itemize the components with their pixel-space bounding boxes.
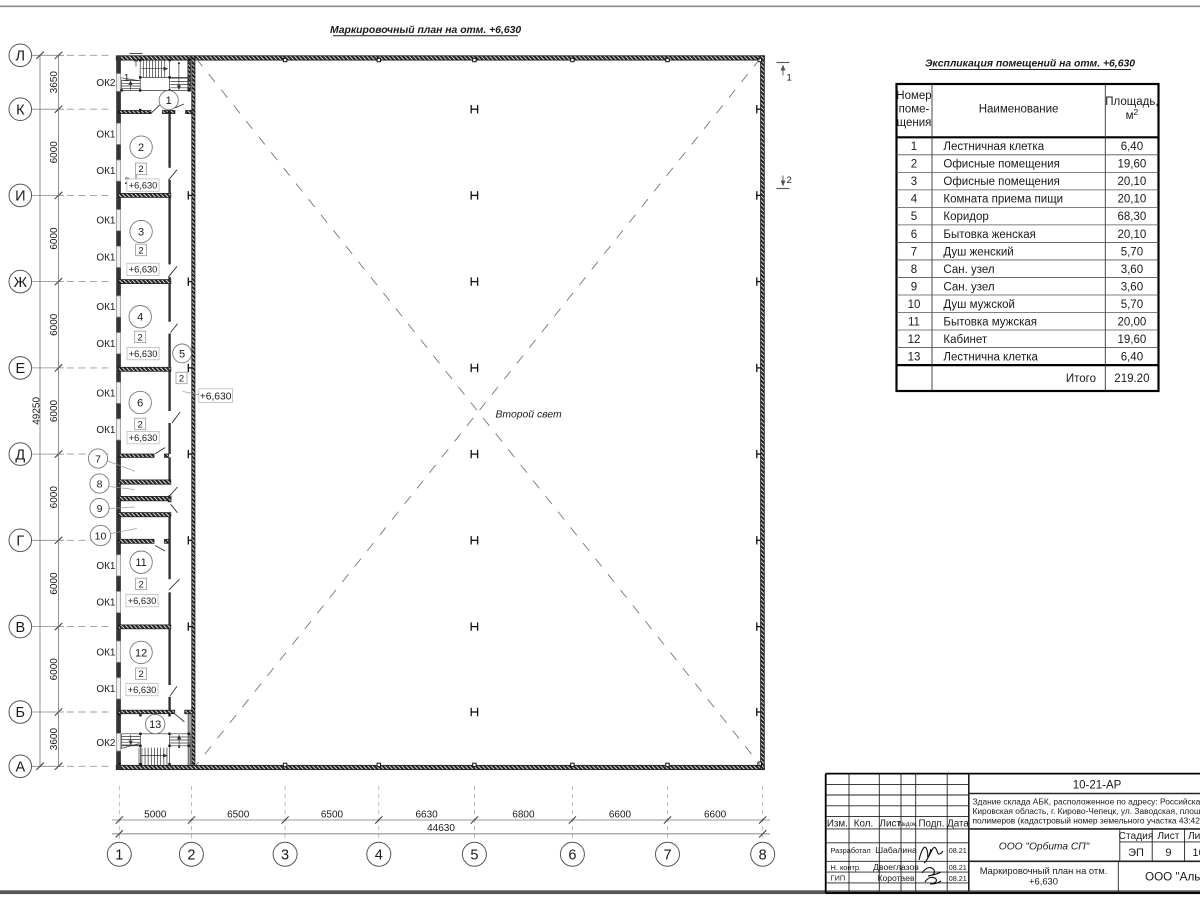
svg-text:6: 6 [911, 229, 917, 241]
svg-text:3650: 3650 [49, 71, 60, 94]
svg-text:20,10: 20,10 [1118, 176, 1147, 188]
svg-text:3: 3 [138, 227, 144, 239]
svg-text:5000: 5000 [144, 809, 167, 820]
svg-text:Душ мужской: Душ мужской [943, 299, 1015, 311]
svg-text:Комната приема пищи: Комната приема пищи [943, 194, 1063, 206]
svg-text:ООО "Орбита СП": ООО "Орбита СП" [999, 841, 1090, 853]
svg-text:Лестнична клетка: Лестнична клетка [943, 351, 1038, 363]
svg-text:+6,630: +6,630 [129, 180, 158, 190]
svg-text:2: 2 [187, 847, 195, 863]
svg-text:2: 2 [138, 245, 143, 256]
svg-text:А: А [15, 760, 25, 776]
svg-text:Второй свет: Второй свет [496, 409, 563, 420]
svg-text:13: 13 [149, 719, 161, 731]
svg-text:+6,630: +6,630 [129, 265, 158, 275]
svg-text:7: 7 [95, 453, 101, 465]
svg-text:ОК1: ОК1 [96, 647, 116, 658]
svg-text:6000: 6000 [49, 141, 60, 164]
svg-text:1: 1 [166, 95, 172, 107]
svg-text:12: 12 [135, 647, 147, 659]
svg-text:8: 8 [759, 847, 767, 863]
svg-text:1: 1 [115, 847, 123, 863]
svg-text:+6,630: +6,630 [128, 596, 157, 606]
svg-text:поме-: поме- [899, 104, 930, 116]
svg-text:Кабинет: Кабинет [943, 334, 987, 346]
svg-text:2: 2 [911, 159, 917, 171]
svg-text:5: 5 [179, 348, 185, 360]
svg-text:И: И [15, 189, 25, 205]
svg-text:Итого: Итого [1066, 373, 1096, 385]
svg-text:ОК2: ОК2 [96, 738, 116, 749]
svg-text:ОК1: ОК1 [96, 129, 116, 140]
svg-text:ОК1: ОК1 [96, 302, 116, 313]
svg-text:4: 4 [137, 312, 143, 324]
svg-text:ОК1: ОК1 [96, 684, 116, 695]
svg-text:Двоеглазов: Двоеглазов [873, 862, 919, 872]
svg-text:Офисные помещения: Офисные помещения [943, 159, 1059, 171]
svg-text:19,60: 19,60 [1118, 334, 1147, 346]
svg-text:Шабалина: Шабалина [875, 845, 917, 855]
svg-text:полимеров (кадастровый номер з: полимеров (кадастровый номер земельного … [973, 815, 1200, 825]
svg-text:Наименование: Наименование [979, 104, 1059, 116]
svg-text:9: 9 [1165, 847, 1171, 859]
svg-text:Экспликация помещений на отм.: Экспликация помещений на отм. +6,630 [925, 59, 1135, 70]
svg-text:20,00: 20,00 [1118, 316, 1147, 328]
svg-text:6: 6 [568, 847, 576, 863]
svg-text:ООО "Альянс: ООО "Альянс [1145, 871, 1200, 884]
svg-text:6000: 6000 [49, 658, 60, 681]
svg-text:08.21: 08.21 [949, 874, 967, 883]
svg-text:20,10: 20,10 [1118, 194, 1147, 206]
svg-text:4: 4 [911, 194, 918, 206]
svg-text:7: 7 [911, 246, 917, 258]
svg-text:2: 2 [138, 579, 143, 590]
svg-text:6000: 6000 [49, 486, 60, 509]
svg-text:Лист: Лист [1157, 831, 1179, 842]
svg-text:+6,630: +6,630 [129, 433, 158, 443]
svg-text:5: 5 [470, 847, 478, 863]
svg-text:2: 2 [138, 669, 143, 680]
svg-text:В: В [15, 620, 25, 636]
svg-text:6000: 6000 [49, 227, 60, 250]
svg-text:10: 10 [908, 299, 921, 311]
svg-text:10: 10 [95, 530, 107, 542]
svg-text:Ж: Ж [14, 275, 28, 291]
svg-text:1: 1 [787, 73, 792, 84]
svg-text:8: 8 [911, 264, 917, 276]
svg-text:Сан. узел: Сан. узел [943, 281, 994, 293]
svg-text:Площадь,: Площадь, [1105, 96, 1158, 108]
svg-text:13: 13 [908, 351, 921, 363]
svg-text:Г: Г [16, 534, 24, 550]
svg-text:Маркировочный план на отм. +6,: Маркировочный план на отм. +6,630 [330, 25, 521, 36]
svg-text:ОК1: ОК1 [96, 425, 116, 436]
svg-text:+6,630: +6,630 [200, 391, 232, 402]
svg-text:49250: 49250 [31, 397, 42, 425]
svg-text:2: 2 [787, 175, 792, 186]
svg-text:Кол.: Кол. [854, 819, 873, 830]
svg-text:Бытовка мужская: Бытовка мужская [943, 316, 1037, 328]
svg-text:44630: 44630 [427, 823, 455, 834]
svg-text:9: 9 [911, 281, 917, 293]
svg-text:6500: 6500 [321, 809, 344, 820]
svg-text:1: 1 [124, 73, 129, 84]
svg-text:Б: Б [16, 705, 26, 721]
svg-text:3: 3 [281, 847, 289, 863]
svg-text:3: 3 [911, 176, 917, 188]
svg-text:Сан. узел: Сан. узел [943, 264, 994, 276]
svg-text:2: 2 [138, 164, 143, 175]
svg-text:Стадия: Стадия [1119, 831, 1154, 842]
svg-text:ОК1: ОК1 [96, 598, 116, 609]
svg-text:1: 1 [911, 141, 917, 153]
svg-text:11: 11 [908, 316, 920, 328]
svg-text:Е: Е [15, 361, 25, 377]
svg-text:Л: Л [16, 49, 26, 65]
svg-text:ОК2: ОК2 [96, 78, 116, 89]
svg-text:19,60: 19,60 [1118, 159, 1147, 171]
svg-text:Подп.: Подп. [918, 819, 944, 830]
svg-text:5,70: 5,70 [1121, 246, 1143, 258]
svg-text:20,10: 20,10 [1118, 229, 1147, 241]
svg-text:8: 8 [97, 478, 103, 490]
svg-text:5: 5 [911, 211, 917, 223]
svg-text:Изм.: Изм. [827, 819, 848, 830]
svg-text:Маркировочный план на отм.: Маркировочный план на отм. [980, 865, 1108, 876]
svg-text:ОК1: ОК1 [96, 339, 116, 350]
svg-text:16: 16 [1192, 847, 1200, 859]
svg-text:Дата: Дата [947, 819, 969, 830]
svg-text:К: К [16, 102, 25, 118]
svg-text:6000: 6000 [49, 313, 60, 336]
svg-text:3,60: 3,60 [1121, 264, 1143, 276]
svg-text:6000: 6000 [49, 572, 60, 595]
svg-text:6: 6 [137, 398, 143, 410]
svg-text:+6,630: +6,630 [129, 349, 158, 359]
svg-text:Номер: Номер [896, 90, 931, 102]
svg-text:ОК1: ОК1 [96, 216, 116, 227]
svg-text:ЭП: ЭП [1128, 847, 1144, 859]
svg-text:Бытовка женская: Бытовка женская [943, 229, 1035, 241]
svg-text:7: 7 [663, 847, 671, 863]
svg-text:6630: 6630 [415, 809, 438, 820]
svg-text:Разработал: Разработал [831, 846, 871, 855]
svg-text:6,40: 6,40 [1121, 351, 1143, 363]
svg-text:68,30: 68,30 [1118, 211, 1147, 223]
svg-text:ОК1: ОК1 [96, 253, 116, 264]
svg-text:№док.: №док. [899, 821, 918, 828]
svg-text:+6,630: +6,630 [1029, 876, 1058, 887]
svg-text:08.21: 08.21 [949, 846, 967, 855]
svg-text:08.21: 08.21 [949, 863, 967, 872]
svg-text:ГИП: ГИП [831, 874, 846, 883]
svg-text:Листов: Листов [1188, 831, 1200, 842]
svg-text:12: 12 [908, 334, 921, 346]
svg-text:11: 11 [135, 557, 146, 569]
svg-text:щения: щения [897, 117, 932, 129]
svg-text:10-21-АР: 10-21-АР [1073, 779, 1122, 791]
svg-text:6500: 6500 [227, 809, 250, 820]
svg-text:Офисные помещения: Офисные помещения [943, 176, 1059, 188]
svg-text:+6,630: +6,630 [128, 685, 157, 695]
svg-text:6,40: 6,40 [1121, 141, 1143, 153]
svg-text:3600: 3600 [49, 728, 60, 751]
svg-text:2: 2 [138, 419, 143, 430]
svg-text:Коротаев: Коротаев [877, 873, 915, 883]
svg-text:2: 2 [138, 142, 144, 154]
svg-text:6000: 6000 [49, 399, 60, 422]
svg-text:6800: 6800 [512, 809, 535, 820]
svg-text:9: 9 [97, 503, 103, 515]
svg-text:6600: 6600 [609, 809, 632, 820]
svg-text:5,70: 5,70 [1121, 299, 1143, 311]
svg-text:Н. контр.: Н. контр. [831, 863, 862, 872]
svg-text:4: 4 [375, 847, 383, 863]
svg-text:ОК1: ОК1 [96, 388, 116, 399]
svg-text:3,60: 3,60 [1121, 281, 1143, 293]
svg-text:ОК1: ОК1 [96, 166, 116, 177]
svg-text:Лестничная клетка: Лестничная клетка [943, 141, 1044, 153]
svg-text:Коридор: Коридор [943, 211, 988, 223]
svg-text:ОК1: ОК1 [96, 561, 116, 572]
svg-text:6600: 6600 [704, 809, 727, 820]
svg-text:219.20: 219.20 [1114, 373, 1149, 385]
svg-text:2: 2 [138, 332, 143, 343]
svg-text:Душ женский: Душ женский [943, 246, 1013, 258]
svg-text:Д: Д [15, 447, 25, 463]
svg-text:2: 2 [179, 373, 184, 384]
